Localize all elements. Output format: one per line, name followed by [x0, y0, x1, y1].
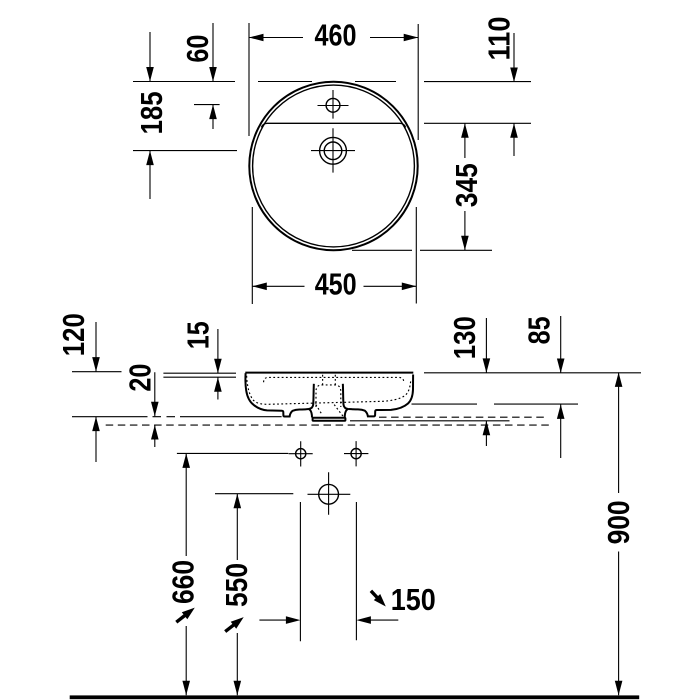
svg-text:185: 185	[134, 91, 169, 134]
svg-text:900: 900	[601, 500, 636, 544]
svg-text:110: 110	[481, 17, 516, 61]
svg-text:120: 120	[56, 313, 91, 356]
svg-text:150: 150	[391, 582, 436, 617]
svg-text:60: 60	[180, 35, 215, 63]
svg-text:85: 85	[521, 316, 556, 344]
svg-text:15: 15	[180, 321, 215, 349]
svg-text:550: 550	[219, 563, 254, 607]
svg-text:660: 660	[166, 560, 201, 604]
svg-text:450: 450	[315, 267, 357, 302]
svg-text:345: 345	[449, 163, 484, 207]
svg-text:20: 20	[122, 364, 157, 392]
svg-text:130: 130	[447, 316, 482, 359]
svg-text:460: 460	[315, 17, 357, 52]
